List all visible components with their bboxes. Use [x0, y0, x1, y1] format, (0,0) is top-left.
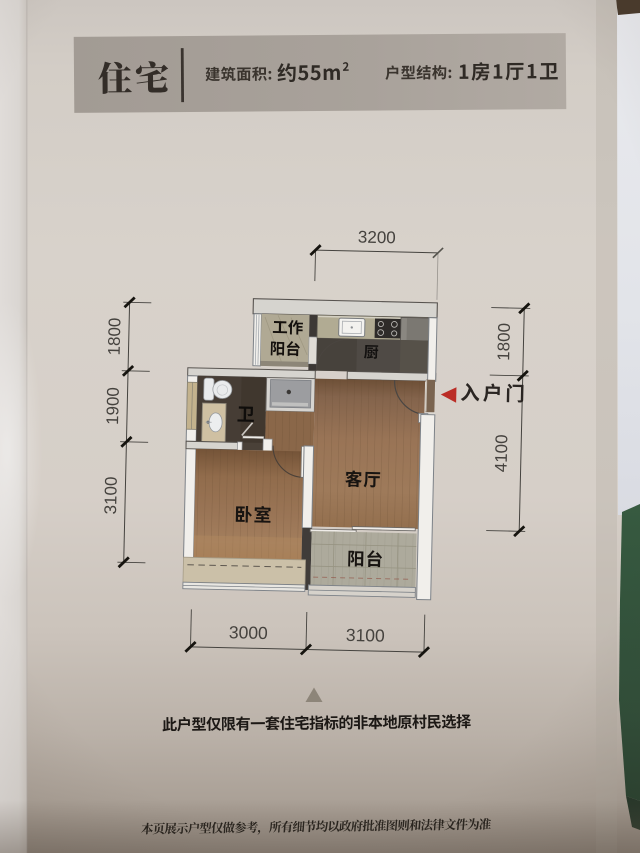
svg-text:3000: 3000	[229, 622, 269, 643]
svg-text:3200: 3200	[358, 228, 396, 248]
svg-text:4100: 4100	[492, 434, 512, 472]
svg-text:3100: 3100	[346, 625, 386, 646]
svg-text:1800: 1800	[494, 323, 514, 361]
svg-text:1800: 1800	[105, 317, 125, 355]
svg-text:1900: 1900	[103, 387, 123, 425]
svg-text:3100: 3100	[101, 476, 121, 514]
